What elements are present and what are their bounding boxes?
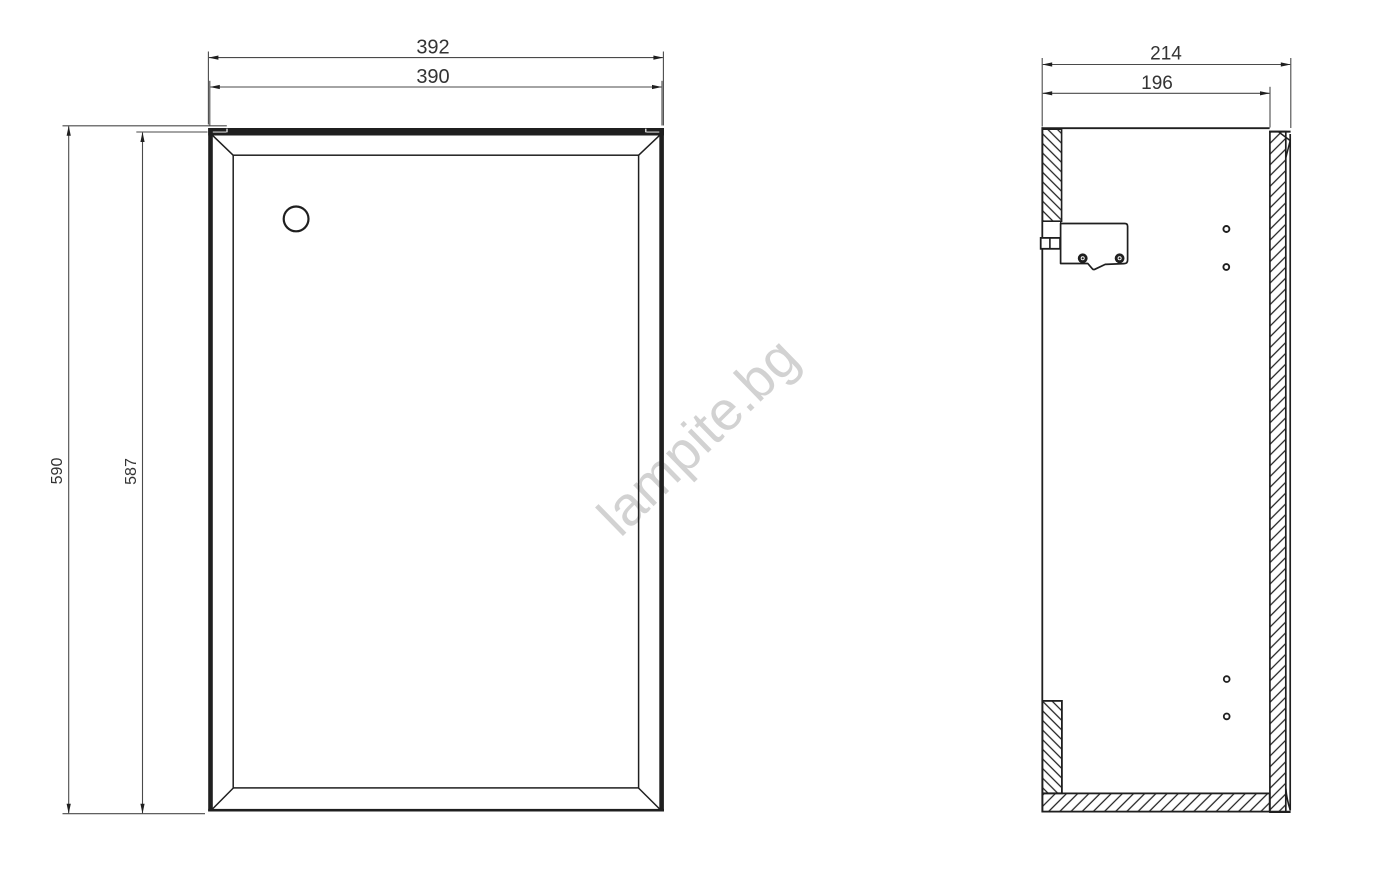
svg-text:lampite.bg: lampite.bg	[585, 326, 810, 548]
svg-text:390: 390	[416, 66, 449, 88]
svg-text:590: 590	[49, 458, 66, 485]
svg-text:196: 196	[1141, 73, 1173, 94]
svg-text:392: 392	[416, 37, 449, 59]
svg-text:214: 214	[1150, 44, 1182, 65]
svg-text:587: 587	[123, 458, 140, 485]
